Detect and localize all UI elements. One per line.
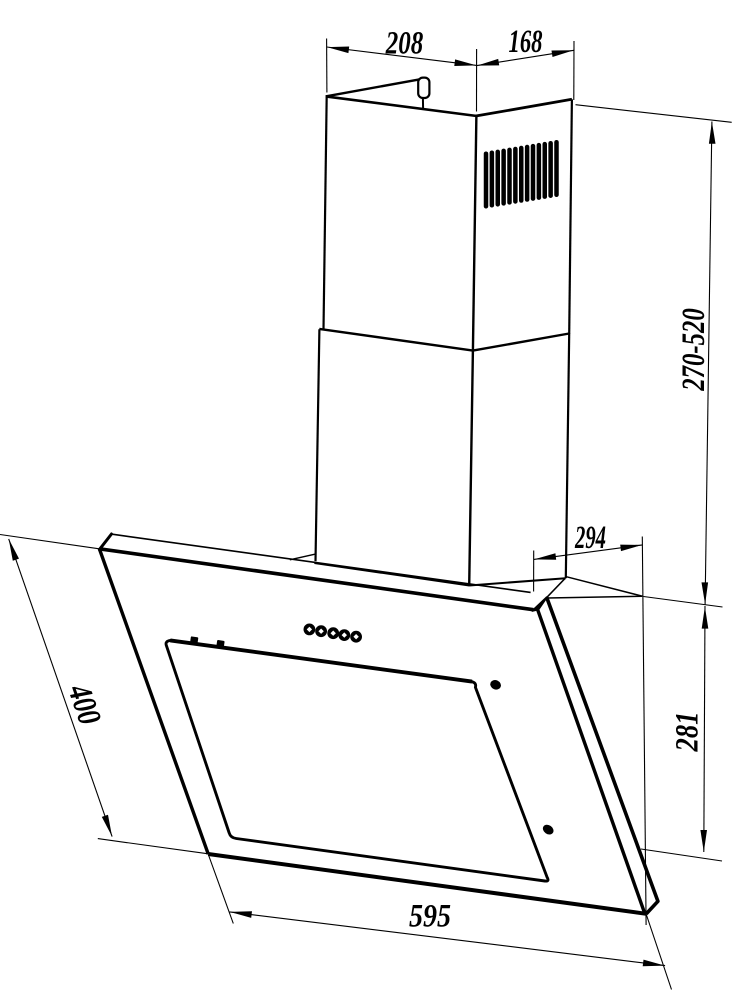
- svg-text:294: 294: [574, 520, 606, 556]
- svg-text:168: 168: [509, 24, 543, 60]
- svg-text:208: 208: [385, 26, 423, 62]
- svg-text:270-520: 270-520: [676, 308, 712, 391]
- svg-text:281: 281: [669, 712, 705, 753]
- svg-text:595: 595: [409, 899, 451, 935]
